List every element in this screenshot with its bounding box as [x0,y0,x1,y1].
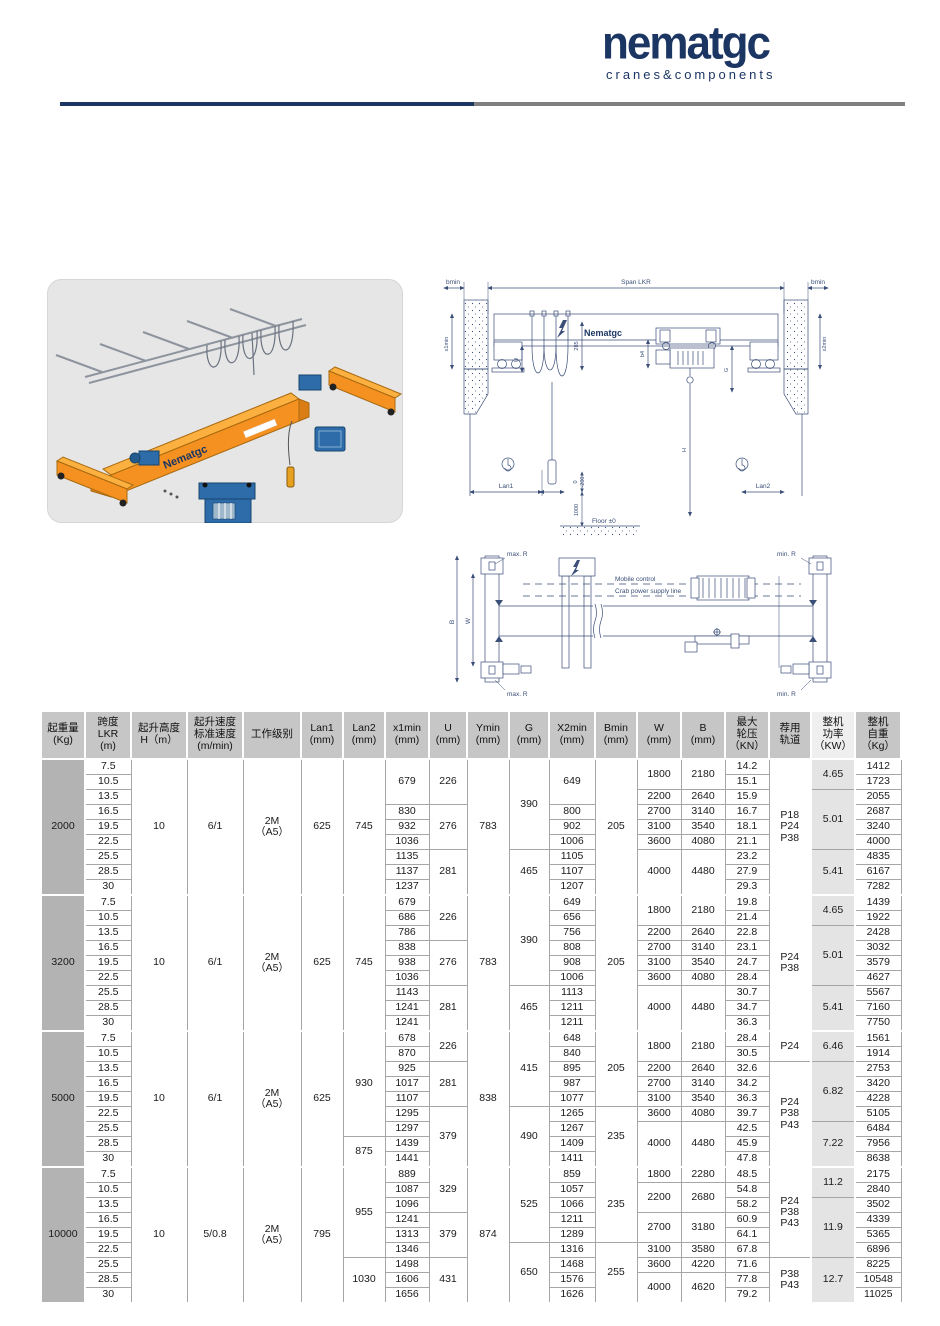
brand-tagline: cranes&components [602,67,870,82]
table-cell: 1561 [855,1031,901,1047]
table-cell: 390 [509,759,549,850]
table-cell: 39.7 [725,1107,769,1122]
capacity-group: 20007.5106/12M （A5）625745679226783390649… [41,759,901,895]
table-cell: 1077 [549,1092,595,1107]
hook-symbol-right-icon [736,458,748,471]
table-cell: 2M （A5） [243,895,301,1031]
table-cell: 2700 [637,805,681,820]
table-cell: 30 [85,1016,131,1032]
table-cell: 1295 [385,1107,429,1122]
table-cell: 30.5 [725,1047,769,1062]
brand-logo: nematgc cranes&components [602,22,870,82]
table-cell: 8638 [855,1152,901,1168]
table-cell: 1656 [385,1288,429,1304]
table-cell: 4480 [681,850,725,896]
g-label: G [724,368,730,372]
table-cell: 226 [429,895,467,941]
table-cell: 4480 [681,986,725,1032]
table-cell: 28.5 [85,1137,131,1152]
table-cell: 3200 [41,895,85,1031]
table-cell: 6484 [855,1122,901,1137]
table-cell: 22.8 [725,926,769,941]
table-cell: 3032 [855,941,901,956]
table-cell: 2180 [681,759,725,790]
power-feed-columns-icon [559,558,779,668]
table-cell: 2700 [637,1077,681,1092]
max-r-top-label: max. R [507,551,528,558]
table-cell: 255 [595,1243,637,1304]
table-cell: 16.7 [725,805,769,820]
table-cell: 808 [549,941,595,956]
table-cell: 2687 [855,805,901,820]
table-cell: 648 [549,1031,595,1047]
column-header: Bmin (mm) [595,711,637,759]
table-cell: 18.1 [725,820,769,835]
table-cell: 1096 [385,1198,429,1213]
floor-icon [560,526,640,536]
table-cell: 235 [595,1107,637,1168]
table-cell: 3100 [637,1243,681,1258]
table-cell: 2680 [681,1183,725,1213]
table-cell: 5365 [855,1228,901,1243]
table-cell: 10.5 [85,1183,131,1198]
table-cell: 7282 [855,880,901,896]
drawing-brand-label: Nematgc [584,328,622,338]
table-cell: 2000 [41,759,85,895]
table-cell: P38 P43 [769,1258,811,1304]
table-cell: 859 [549,1167,595,1183]
table-cell: 2175 [855,1167,901,1183]
table-cell: 3600 [637,1107,681,1122]
table-cell: 1498 [385,1258,429,1273]
table-cell: 4000 [637,1273,681,1304]
table-cell: 1316 [549,1243,595,1258]
plan-carriage-left-icon [481,556,531,682]
table-cell: 3540 [681,820,725,835]
table-cell: P24 P38 P43 [769,1062,811,1168]
table-cell: 276 [429,941,467,986]
control-panel-icon [315,427,345,451]
brand-wordmark: nematgc [602,21,870,67]
table-cell: 29.3 [725,880,769,896]
table-cell: 281 [429,850,467,896]
table-cell: 7.5 [85,759,131,775]
table-cell: 1135 [385,850,429,865]
table-cell: 15.9 [725,790,769,805]
table-cell: 32.6 [725,1062,769,1077]
table-cell: 2200 [637,790,681,805]
column-header: Lan2 (mm) [343,711,385,759]
dim-m200-label: -200 [580,476,586,487]
table-cell: 1914 [855,1047,901,1062]
table-cell: 1439 [855,895,901,911]
table-cell: 10.5 [85,911,131,926]
table-cell: 24.7 [725,956,769,971]
table-cell: 783 [467,895,509,1031]
table-cell: 4620 [681,1273,725,1304]
table-cell: 465 [509,850,549,896]
table-cell: 795 [301,1167,343,1303]
exploded-view-drawing: Nematgc [47,279,403,523]
column-header: W (mm) [637,711,681,759]
table-cell: 800 [549,805,595,820]
table-cell: 2180 [681,895,725,926]
table-cell: 1289 [549,1228,595,1243]
table-cell: 3180 [681,1213,725,1243]
table-cell: 281 [429,1062,467,1107]
table-cell: 1237 [385,880,429,896]
b4-label: b4 [640,351,646,357]
u-label: U [514,358,520,362]
table-cell: 1346 [385,1243,429,1258]
table-cell: 3420 [855,1077,901,1092]
table-cell: 7160 [855,1001,901,1016]
table-cell: 28.5 [85,865,131,880]
table-cell: 1036 [385,971,429,986]
pendant-icon [540,382,564,492]
table-cell: 783 [467,759,509,895]
table-cell: 30 [85,880,131,896]
min-r-bottom-label: min. R [777,691,796,698]
table-cell: 2055 [855,790,901,805]
table-cell: 27.9 [725,865,769,880]
table-cell: 930 [343,1031,385,1137]
table-cell: 21.1 [725,835,769,850]
dim-extension-lines [464,282,808,314]
table-cell: 6.46 [811,1031,855,1062]
table-cell: 2200 [637,1062,681,1077]
table-cell: 276 [429,805,467,850]
column-header: U (mm) [429,711,467,759]
table-cell: 2840 [855,1183,901,1198]
table-cell: 8225 [855,1258,901,1273]
w-label: W [465,617,472,624]
table-cell: 2280 [681,1167,725,1183]
column-header: x1min (mm) [385,711,429,759]
table-cell: 5/0.8 [187,1167,243,1303]
table-cell: 21.4 [725,911,769,926]
table-cell: 1922 [855,911,901,926]
table-cell: 7.5 [85,1031,131,1047]
table-cell: 650 [509,1243,549,1304]
table-cell: 1137 [385,865,429,880]
table-cell: 205 [595,1031,637,1107]
table-cell: 932 [385,820,429,835]
x2min-label: x2min [822,337,828,352]
table-cell: 938 [385,956,429,971]
table-cell: 895 [549,1062,595,1077]
table-cell: 2M （A5） [243,1167,301,1303]
table-cell: 3502 [855,1198,901,1213]
table-cell: 679 [385,895,429,911]
table-cell: 625 [301,759,343,895]
table-cell: 4339 [855,1213,901,1228]
table-cell: 79.2 [725,1288,769,1304]
table-cell: 19.8 [725,895,769,911]
column-header: X2min (mm) [549,711,595,759]
table-cell: 3140 [681,941,725,956]
table-cell: 1313 [385,1228,429,1243]
table-cell: 34.7 [725,1001,769,1016]
table-cell: 7.5 [85,1167,131,1183]
table-cell: 34.2 [725,1077,769,1092]
table-cell: 1241 [385,1213,429,1228]
table-cell: 5567 [855,986,901,1001]
column-header: 整机 自重 （Kg） [855,711,901,759]
table-cell: 2753 [855,1062,901,1077]
table-cell: 16.5 [85,941,131,956]
plan-carriage-right-icon [781,556,831,682]
table-cell: 987 [549,1077,595,1092]
elevation-drawing: bmin Span LKR bmin x1min x2min U 285 b4 … [436,274,836,546]
hoist-motor-icon [130,451,159,465]
table-row: 32007.5106/12M （A5）625745679226783390649… [41,895,901,911]
table-cell: 6/1 [187,895,243,1031]
table-cell: 25.5 [85,986,131,1001]
dim-1000-label: 1000 [574,504,580,516]
table-cell: 908 [549,956,595,971]
table-cell: 390 [509,895,549,986]
table-cell: 22.5 [85,1243,131,1258]
table-cell: 16.5 [85,1213,131,1228]
table-cell: P18 P24 P38 [769,759,811,895]
table-cell: 2M （A5） [243,759,301,895]
table-cell: 902 [549,820,595,835]
table-cell: 11.9 [811,1198,855,1258]
table-cell: 10 [131,895,187,1031]
crab-supply-label: Crab power supply line [615,588,682,595]
table-cell: 1017 [385,1077,429,1092]
table-cell: 2180 [681,1031,725,1062]
column-header: 最大 轮压 （KN） [725,711,769,759]
table-cell: 465 [509,986,549,1032]
table-cell: 3140 [681,1077,725,1092]
table-cell: 1409 [549,1137,595,1152]
column-header: 跨度 LKR (m) [85,711,131,759]
end-truck-right-icon [748,342,780,372]
capacity-group: 100007.5105/0.82M （A5）795955889329874525… [41,1167,901,1303]
lan2-label: Lan2 [756,483,771,490]
table-cell: 1211 [549,1001,595,1016]
max-r-bottom-label: max. R [507,691,528,698]
table-cell: 28.4 [725,1031,769,1047]
hoist-trolley-icon [656,328,720,383]
table-cell: P24 P38 P43 [769,1167,811,1258]
table-cell: 756 [549,926,595,941]
table-cell: 490 [509,1107,549,1168]
table-cell: 15.1 [725,775,769,790]
table-cell: 2700 [637,941,681,956]
table-cell: 3600 [637,835,681,850]
table-cell: 77.8 [725,1273,769,1288]
table-cell: 3579 [855,956,901,971]
table-cell: 28.5 [85,1001,131,1016]
table-cell: 1207 [549,880,595,896]
plan-view-drawing: max. R max. R min. R min. R Mobile contr… [445,548,835,700]
table-cell: 2428 [855,926,901,941]
table-cell: 745 [343,759,385,895]
table-cell: 3540 [681,1092,725,1107]
table-cell: 1241 [385,1016,429,1032]
table-cell: 11.2 [811,1167,855,1198]
mobile-control-label: Mobile control [615,576,656,583]
spec-table-section: 起重量 (Kg)跨度 LKR (m)起升高度 H（m）起升速度 标准速度 (m/… [40,710,900,1304]
table-cell: 10 [131,759,187,895]
table-cell: 3100 [637,1092,681,1107]
table-cell: 745 [343,895,385,1031]
table-cell: 19.5 [85,1228,131,1243]
table-cell: 1030 [343,1258,385,1304]
table-cell: 1006 [549,971,595,986]
table-cell: 5.01 [811,926,855,986]
table-cell: 58.2 [725,1198,769,1213]
table-cell: 2200 [637,926,681,941]
table-cell: 10000 [41,1167,85,1303]
table-cell: 226 [429,759,467,805]
table-cell: 19.5 [85,1092,131,1107]
table-cell: 6167 [855,865,901,880]
x1min-label: x1min [444,337,450,352]
wall-left-icon [464,300,488,496]
table-cell: 525 [509,1167,549,1243]
table-cell: 4000 [637,850,681,896]
b-label: B [449,620,456,624]
header-divider [60,102,905,106]
table-cell: 840 [549,1047,595,1062]
table-cell: 13.5 [85,1198,131,1213]
table-cell: 4627 [855,971,901,986]
table-cell: 1297 [385,1122,429,1137]
table-cell: 3100 [637,820,681,835]
table-cell: 28.4 [725,971,769,986]
table-cell: 1107 [385,1092,429,1107]
table-row: 50007.5106/12M （A5）625930678226838415648… [41,1031,901,1047]
table-cell: 16.5 [85,1077,131,1092]
table-cell: 1006 [549,835,595,850]
table-cell: 1036 [385,835,429,850]
trolley-drive-icon [299,375,321,390]
table-cell: 2200 [637,1183,681,1213]
table-cell: 1606 [385,1273,429,1288]
plan-svg: max. R max. R min. R min. R Mobile contr… [445,548,835,700]
dim-0-label: 0 [573,480,579,483]
table-cell: P24 [769,1031,811,1062]
spec-sheet-page: { "brand": { "name": "nematgc", "tagline… [0,0,940,1326]
table-row: 100007.5105/0.82M （A5）795955889329874525… [41,1167,901,1183]
column-header: 整机 功率 （KW） [811,711,855,759]
table-cell: 14.2 [725,759,769,775]
table-cell: 1107 [549,865,595,880]
table-row: 20007.5106/12M （A5）625745679226783390649… [41,759,901,775]
table-cell: 25.5 [85,850,131,865]
table-cell: 10 [131,1031,187,1167]
table-cell: 19.5 [85,820,131,835]
wall-right-icon [784,300,808,496]
table-cell: 415 [509,1031,549,1107]
table-cell: 1412 [855,759,901,775]
table-cell: 1087 [385,1183,429,1198]
table-cell: 1241 [385,1001,429,1016]
column-header: 工作级别 [243,711,301,759]
table-cell: 67.8 [725,1243,769,1258]
table-cell: 7956 [855,1137,901,1152]
table-cell: 23.1 [725,941,769,956]
dim-285-label: 285 [574,341,580,350]
table-cell: 786 [385,926,429,941]
table-cell: 19.5 [85,956,131,971]
capacity-group: 50007.5106/12M （A5）625930678226838415648… [41,1031,901,1167]
table-cell: 5.41 [811,986,855,1032]
min-r-top-label: min. R [777,551,796,558]
table-cell: 23.2 [725,850,769,865]
table-cell: 13.5 [85,926,131,941]
table-cell: 870 [385,1047,429,1062]
table-cell: 10548 [855,1273,901,1288]
table-cell: 6.82 [811,1062,855,1122]
table-cell: 5.01 [811,790,855,850]
table-cell: 329 [429,1167,467,1213]
table-cell: 226 [429,1031,467,1062]
column-header: B (mm) [681,711,725,759]
table-cell: 875 [343,1137,385,1168]
column-header: 起升高度 H（m） [131,711,187,759]
table-cell: 2640 [681,790,725,805]
bridge-girder-icon [494,314,778,346]
table-cell: 13.5 [85,790,131,805]
end-truck-left-icon [492,342,524,372]
table-cell: 4080 [681,971,725,986]
table-cell: 2M （A5） [243,1031,301,1167]
table-cell: 1211 [549,1016,595,1032]
table-cell: 1211 [549,1213,595,1228]
table-cell: 5000 [41,1031,85,1167]
table-cell: 3580 [681,1243,725,1258]
table-cell: 28.5 [85,1273,131,1288]
table-cell: 4000 [637,1122,681,1168]
table-cell: 1723 [855,775,901,790]
table-cell: 281 [429,986,467,1032]
table-cell: 10 [131,1167,187,1303]
table-cell: 7750 [855,1016,901,1032]
table-cell: 235 [595,1167,637,1243]
table-cell: 12.7 [811,1258,855,1304]
table-cell: 2640 [681,926,725,941]
table-cell: 656 [549,911,595,926]
table-cell: 45.9 [725,1137,769,1152]
table-cell: 1113 [549,986,595,1001]
table-cell: 6896 [855,1243,901,1258]
table-cell: 47.8 [725,1152,769,1168]
hoist-icon [199,483,255,524]
table-cell: 4228 [855,1092,901,1107]
table-cell: 11025 [855,1288,901,1304]
table-cell: 625 [301,1031,343,1167]
table-cell: 874 [467,1167,509,1303]
plan-trolley-icon [685,576,755,652]
table-cell: 36.3 [725,1016,769,1032]
table-cell: 4220 [681,1258,725,1273]
table-cell: 22.5 [85,971,131,986]
table-cell: 25.5 [85,1122,131,1137]
table-cell: 1439 [385,1137,429,1152]
table-cell: 1105 [549,850,595,865]
table-cell: 10.5 [85,1047,131,1062]
table-cell: 4480 [681,1122,725,1168]
table-cell: 379 [429,1213,467,1258]
table-cell: 2700 [637,1213,681,1243]
table-cell: 3240 [855,820,901,835]
floor-label: Floor ±0 [592,518,616,525]
